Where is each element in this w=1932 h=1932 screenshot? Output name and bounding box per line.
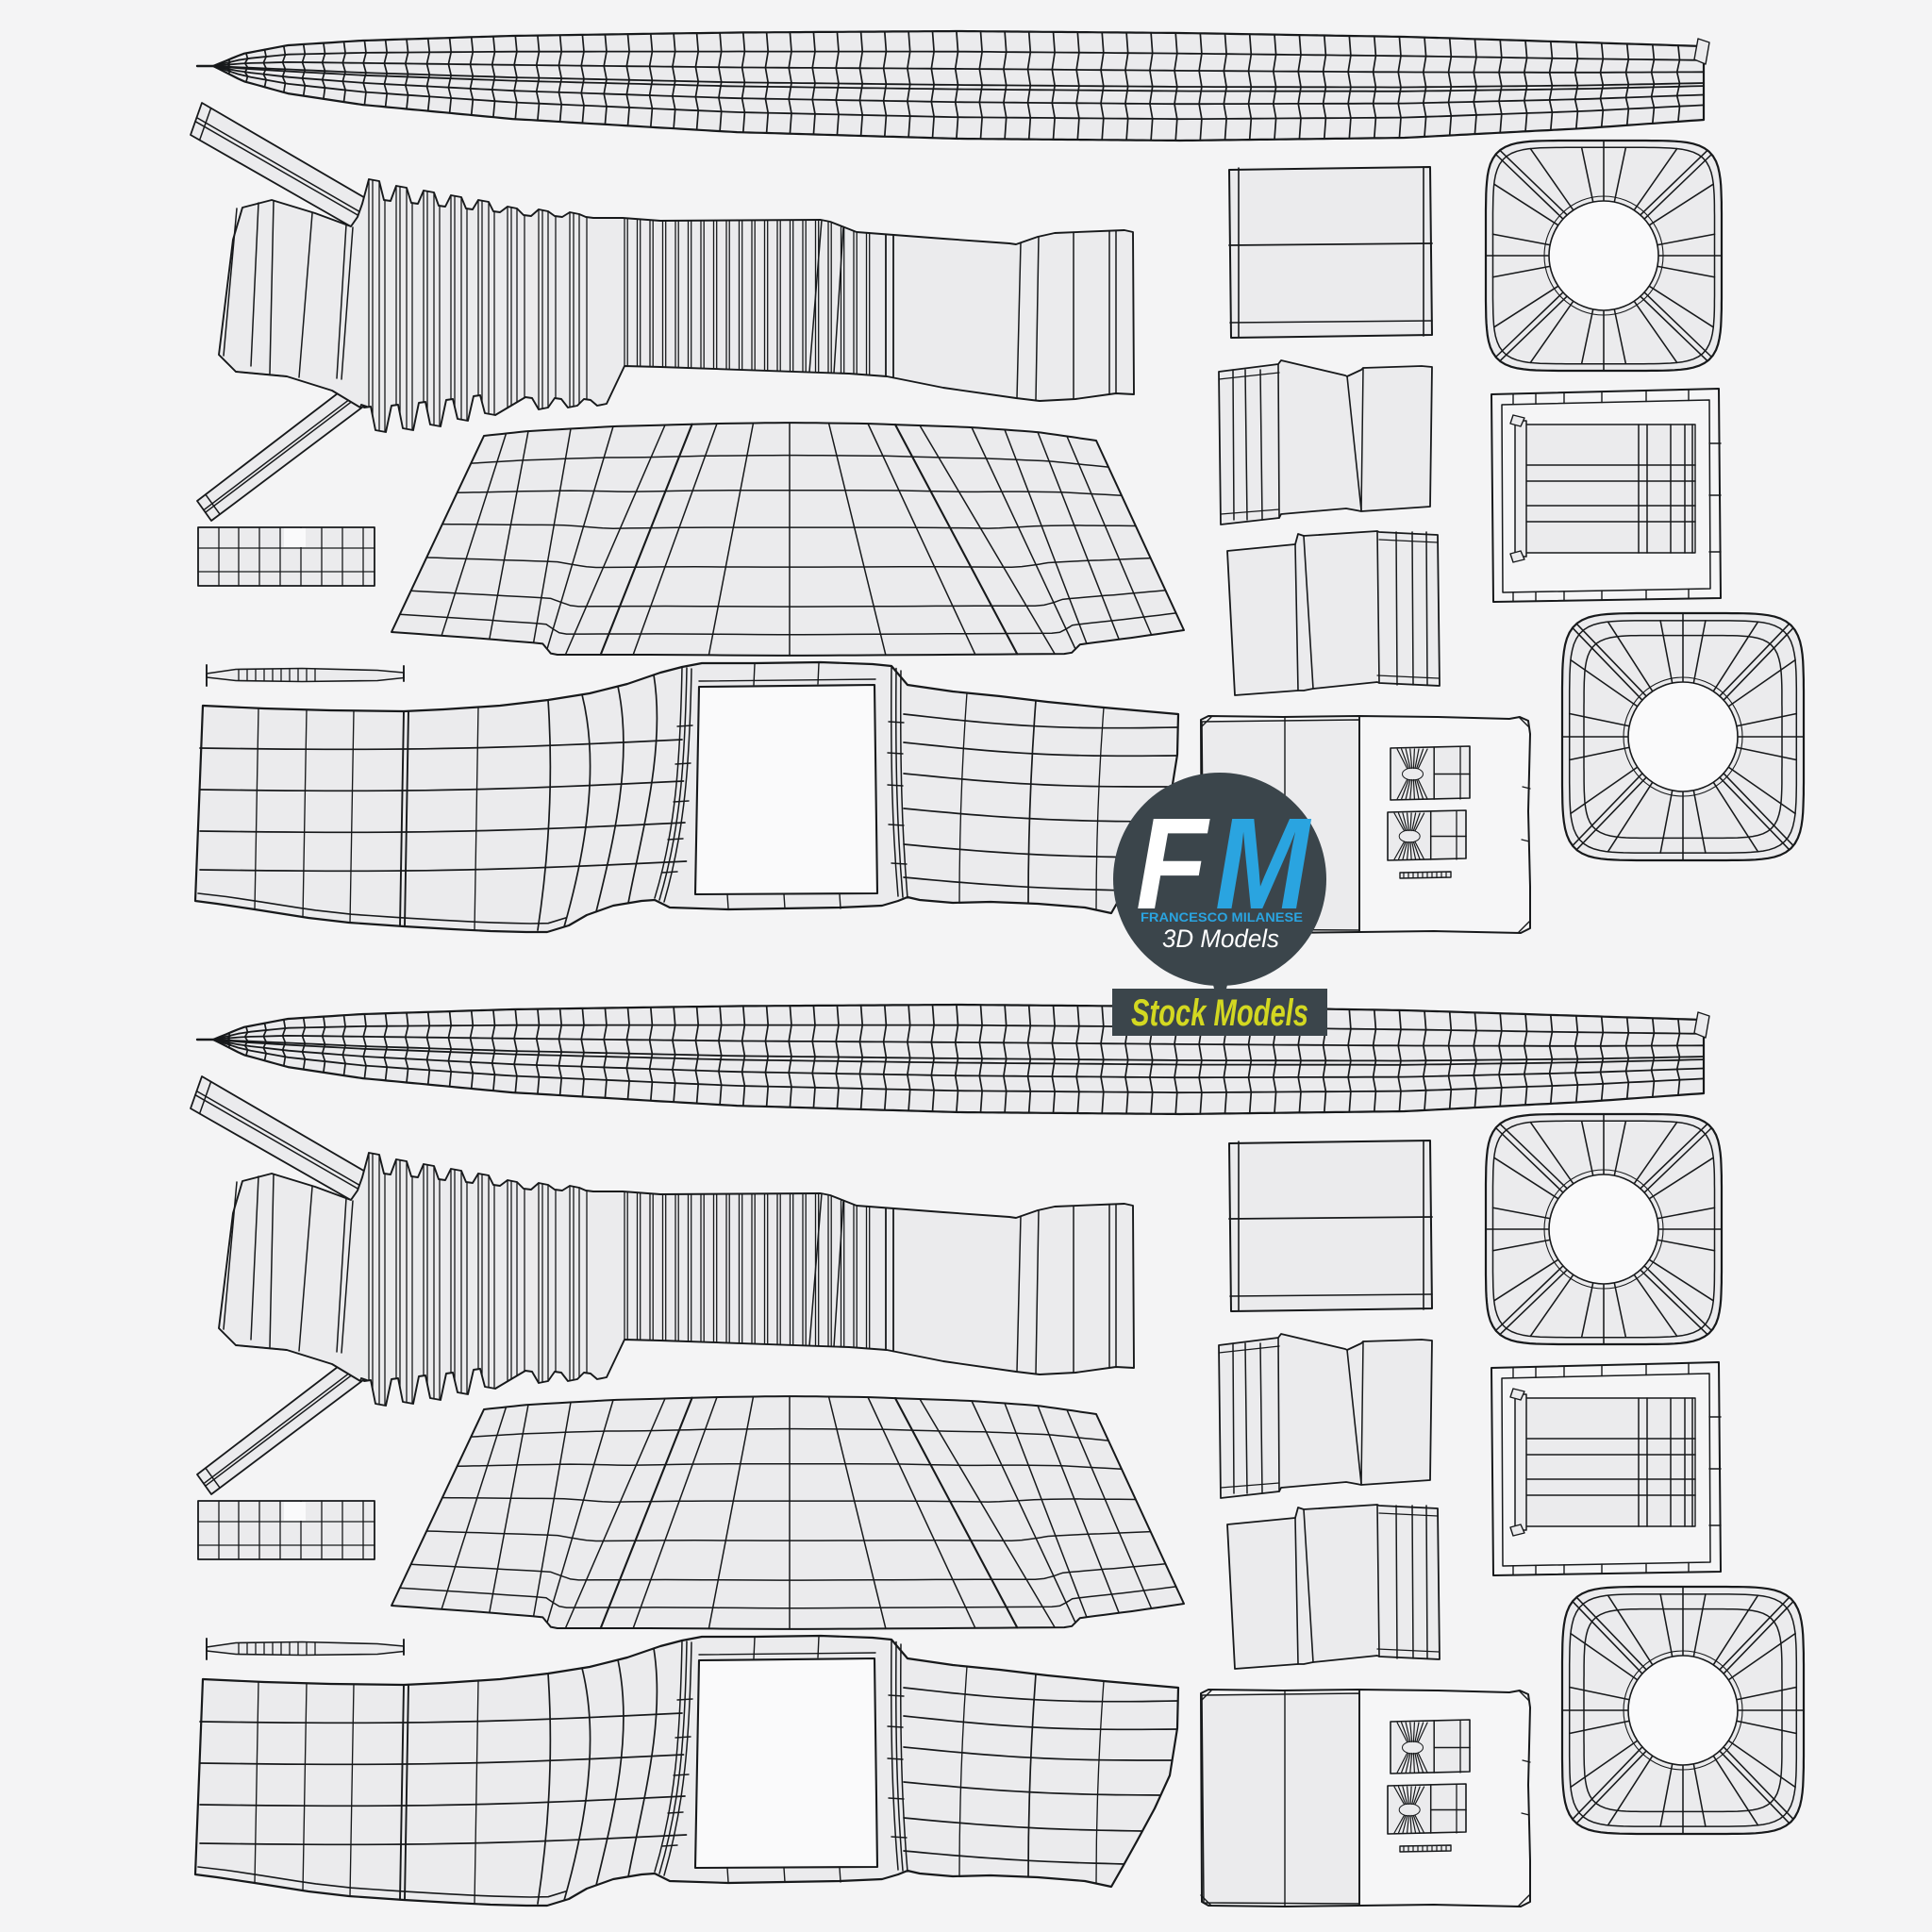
svg-text:FRANCESCO MILANESE: FRANCESCO MILANESE xyxy=(1141,910,1303,924)
svg-text:3D Models: 3D Models xyxy=(1162,924,1279,953)
svg-text:Stock Models: Stock Models xyxy=(1131,992,1308,1034)
